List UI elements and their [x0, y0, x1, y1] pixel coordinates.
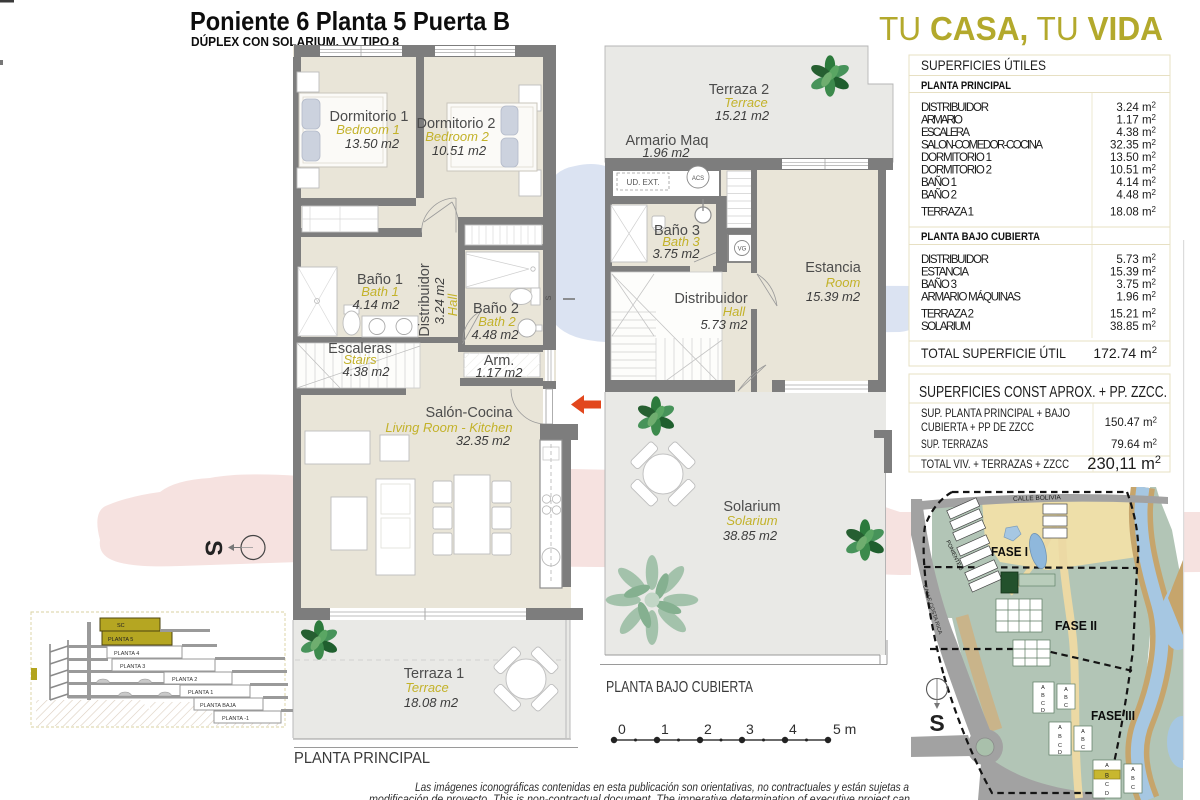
svg-text:Salón-Cocina: Salón-Cocina	[425, 405, 513, 421]
svg-text:Solarium: Solarium	[726, 513, 777, 528]
svg-text:Room: Room	[826, 275, 861, 290]
svg-text:0: 0	[618, 721, 626, 737]
svg-text:A: A	[1064, 687, 1068, 693]
svg-text:150.47 m2: 150.47 m2	[1105, 416, 1158, 430]
svg-text:32.35 m2: 32.35 m2	[1110, 138, 1157, 152]
svg-text:4.48 m2: 4.48 m2	[1116, 188, 1156, 202]
svg-text:C: C	[1058, 743, 1062, 749]
svg-text:3.75 m2: 3.75 m2	[653, 246, 701, 261]
svg-text:C: C	[1105, 782, 1109, 788]
svg-text:13.50 m2: 13.50 m2	[345, 136, 400, 151]
svg-text:DISTRIBUIDOR: DISTRIBUIDOR	[921, 254, 989, 266]
svg-text:4.14 m2: 4.14 m2	[1116, 176, 1156, 190]
svg-text:S: S	[200, 540, 227, 556]
svg-text:5 m: 5 m	[833, 721, 856, 737]
svg-text:18.08 m2: 18.08 m2	[1110, 205, 1157, 219]
svg-text:PLANTA PRINCIPAL: PLANTA PRINCIPAL	[921, 80, 1011, 92]
svg-text:ESTANCIA: ESTANCIA	[921, 267, 969, 279]
svg-text:C: C	[1081, 745, 1085, 751]
svg-text:A: A	[1058, 725, 1062, 731]
svg-text:10.51 m2: 10.51 m2	[432, 143, 487, 158]
svg-text:TU CASA, TU VIDA: TU CASA, TU VIDA	[879, 10, 1163, 47]
svg-text:modificación de proyecto. This: modificación de proyecto. This is non-co…	[369, 792, 951, 800]
svg-text:SUPERFICIES ÚTILES: SUPERFICIES ÚTILES	[921, 57, 1046, 73]
svg-text:3: 3	[746, 721, 754, 737]
svg-text:BAÑO 1: BAÑO 1	[921, 176, 957, 189]
svg-text:UD. EXT.: UD. EXT.	[627, 178, 660, 187]
svg-text:5.73 m2: 5.73 m2	[1116, 253, 1156, 267]
svg-text:4.38 m2: 4.38 m2	[1116, 126, 1156, 140]
svg-text:FASE III: FASE III	[1091, 708, 1135, 723]
svg-text:PLANTA 3: PLANTA 3	[120, 664, 145, 670]
svg-text:CUBIERTA + PP DE ZZCC: CUBIERTA + PP DE ZZCC	[921, 422, 1034, 434]
svg-text:PLANTA BAJO CUBIERTA: PLANTA BAJO CUBIERTA	[606, 679, 754, 696]
svg-text:A: A	[1041, 685, 1045, 691]
svg-text:C: C	[1041, 701, 1045, 707]
svg-text:DISTRIBUIDOR: DISTRIBUIDOR	[921, 102, 989, 114]
svg-text:ACS: ACS	[692, 176, 704, 182]
svg-text:FASE II: FASE II	[1055, 618, 1097, 633]
svg-text:38.85 m2: 38.85 m2	[723, 528, 778, 543]
svg-text:79.64 m2: 79.64 m2	[1111, 438, 1158, 452]
svg-text:SC: SC	[117, 623, 125, 629]
svg-text:18.08 m2: 18.08 m2	[404, 695, 459, 710]
svg-text:1.96 m2: 1.96 m2	[643, 145, 691, 160]
svg-text:Distribuidor: Distribuidor	[417, 263, 433, 336]
svg-text:DORMITORIO 1: DORMITORIO 1	[921, 152, 992, 164]
svg-text:PLANTA 5: PLANTA 5	[108, 637, 133, 643]
svg-text:S: S	[929, 710, 944, 736]
svg-text:Terrace: Terrace	[405, 680, 449, 695]
svg-text:D: D	[1105, 791, 1109, 797]
svg-text:1.17 m2: 1.17 m2	[476, 365, 524, 380]
svg-text:B: B	[1041, 693, 1045, 699]
svg-text:Hall: Hall	[445, 293, 460, 317]
svg-text:VG: VG	[738, 247, 747, 253]
svg-text:10.51 m2: 10.51 m2	[1110, 163, 1157, 177]
svg-text:TERRAZA 1: TERRAZA 1	[921, 207, 974, 219]
svg-text:4.14 m2: 4.14 m2	[353, 297, 401, 312]
svg-text:Poniente 6 Planta 5 Puerta B: Poniente 6 Planta 5 Puerta B	[190, 6, 510, 36]
svg-text:TOTAL VIV. + TERRAZAS + ZZCC: TOTAL VIV. + TERRAZAS + ZZCC	[921, 457, 1069, 471]
svg-text:B: B	[1064, 695, 1068, 701]
svg-text:5.73 m2: 5.73 m2	[701, 317, 749, 332]
svg-text:15.39 m2: 15.39 m2	[806, 289, 861, 304]
svg-text:ARMARIO MÁQUINAS: ARMARIO MÁQUINAS	[921, 291, 1021, 304]
svg-text:A: A	[1131, 767, 1135, 773]
svg-text:3.24 m2: 3.24 m2	[1116, 101, 1156, 115]
svg-text:SUP. TERRAZAS: SUP. TERRAZAS	[921, 439, 988, 451]
svg-text:BAÑO 2: BAÑO 2	[921, 189, 957, 202]
svg-text:1.17 m2: 1.17 m2	[1116, 113, 1156, 127]
svg-text:PLANTA PRINCIPAL: PLANTA PRINCIPAL	[294, 750, 430, 767]
svg-text:A: A	[1105, 763, 1109, 769]
svg-text:1.96 m2: 1.96 m2	[1116, 290, 1156, 304]
svg-text:15.21 m2: 15.21 m2	[1110, 307, 1157, 321]
svg-text:B: B	[1131, 776, 1135, 782]
svg-text:230,11 m2: 230,11 m2	[1087, 454, 1161, 473]
svg-text:13.50 m2: 13.50 m2	[1110, 151, 1157, 165]
svg-text:SOLARIUM: SOLARIUM	[921, 321, 971, 333]
svg-text:B: B	[1105, 774, 1109, 780]
svg-text:PLANTA BAJA: PLANTA BAJA	[200, 703, 236, 709]
svg-text:BAÑO 3: BAÑO 3	[921, 278, 957, 291]
svg-text:PLANTA -1: PLANTA -1	[222, 716, 249, 722]
svg-text:TERRAZA 2: TERRAZA 2	[921, 309, 974, 321]
svg-text:s: s	[543, 296, 554, 301]
svg-text:PLANTA 2: PLANTA 2	[172, 677, 197, 683]
svg-text:172.74 m2: 172.74 m2	[1093, 345, 1157, 361]
svg-text:SALON-COMEDOR-COCINA: SALON-COMEDOR-COCINA	[921, 140, 1043, 152]
svg-text:4: 4	[789, 721, 797, 737]
svg-text:4.48 m2: 4.48 m2	[472, 327, 520, 342]
svg-text:B: B	[1081, 737, 1085, 743]
svg-text:3.75 m2: 3.75 m2	[1116, 278, 1156, 292]
svg-text:Bedroom 1: Bedroom 1	[336, 122, 400, 137]
svg-text:C: C	[1064, 703, 1068, 709]
svg-text:15.21 m2: 15.21 m2	[715, 108, 770, 123]
svg-text:1: 1	[661, 721, 669, 737]
svg-text:FASE I: FASE I	[991, 544, 1028, 559]
svg-text:ARMARIO: ARMARIO	[921, 115, 963, 127]
svg-text:15.39 m2: 15.39 m2	[1110, 265, 1157, 279]
svg-text:PLANTA BAJO CUBIERTA: PLANTA BAJO CUBIERTA	[921, 231, 1040, 243]
svg-text:Estancia: Estancia	[805, 260, 862, 276]
svg-text:Bedroom 2: Bedroom 2	[425, 129, 489, 144]
svg-text:ESCALERA: ESCALERA	[921, 127, 970, 139]
svg-text:SUP. PLANTA PRINCIPAL + BAJO: SUP. PLANTA PRINCIPAL + BAJO	[921, 408, 1070, 420]
svg-text:PLANTA 4: PLANTA 4	[114, 651, 139, 657]
svg-text:38.85 m2: 38.85 m2	[1110, 320, 1157, 334]
svg-text:4.38 m2: 4.38 m2	[343, 364, 391, 379]
svg-text:PLANTA 1: PLANTA 1	[188, 690, 213, 696]
svg-text:SUPERFICIES CONST APROX. + PP.: SUPERFICIES CONST APROX. + PP. ZZCC.	[919, 384, 1167, 401]
svg-text:D: D	[1041, 708, 1045, 714]
svg-text:D: D	[1058, 750, 1062, 756]
svg-text:A: A	[1081, 729, 1085, 735]
svg-text:TOTAL SUPERFICIE ÚTIL: TOTAL SUPERFICIE ÚTIL	[921, 345, 1066, 361]
svg-text:32.35 m2: 32.35 m2	[456, 433, 511, 448]
svg-text:C: C	[1131, 785, 1135, 791]
svg-text:2: 2	[704, 721, 712, 737]
svg-text:B: B	[1058, 734, 1062, 740]
svg-text:DORMITORIO 2: DORMITORIO 2	[921, 165, 992, 177]
